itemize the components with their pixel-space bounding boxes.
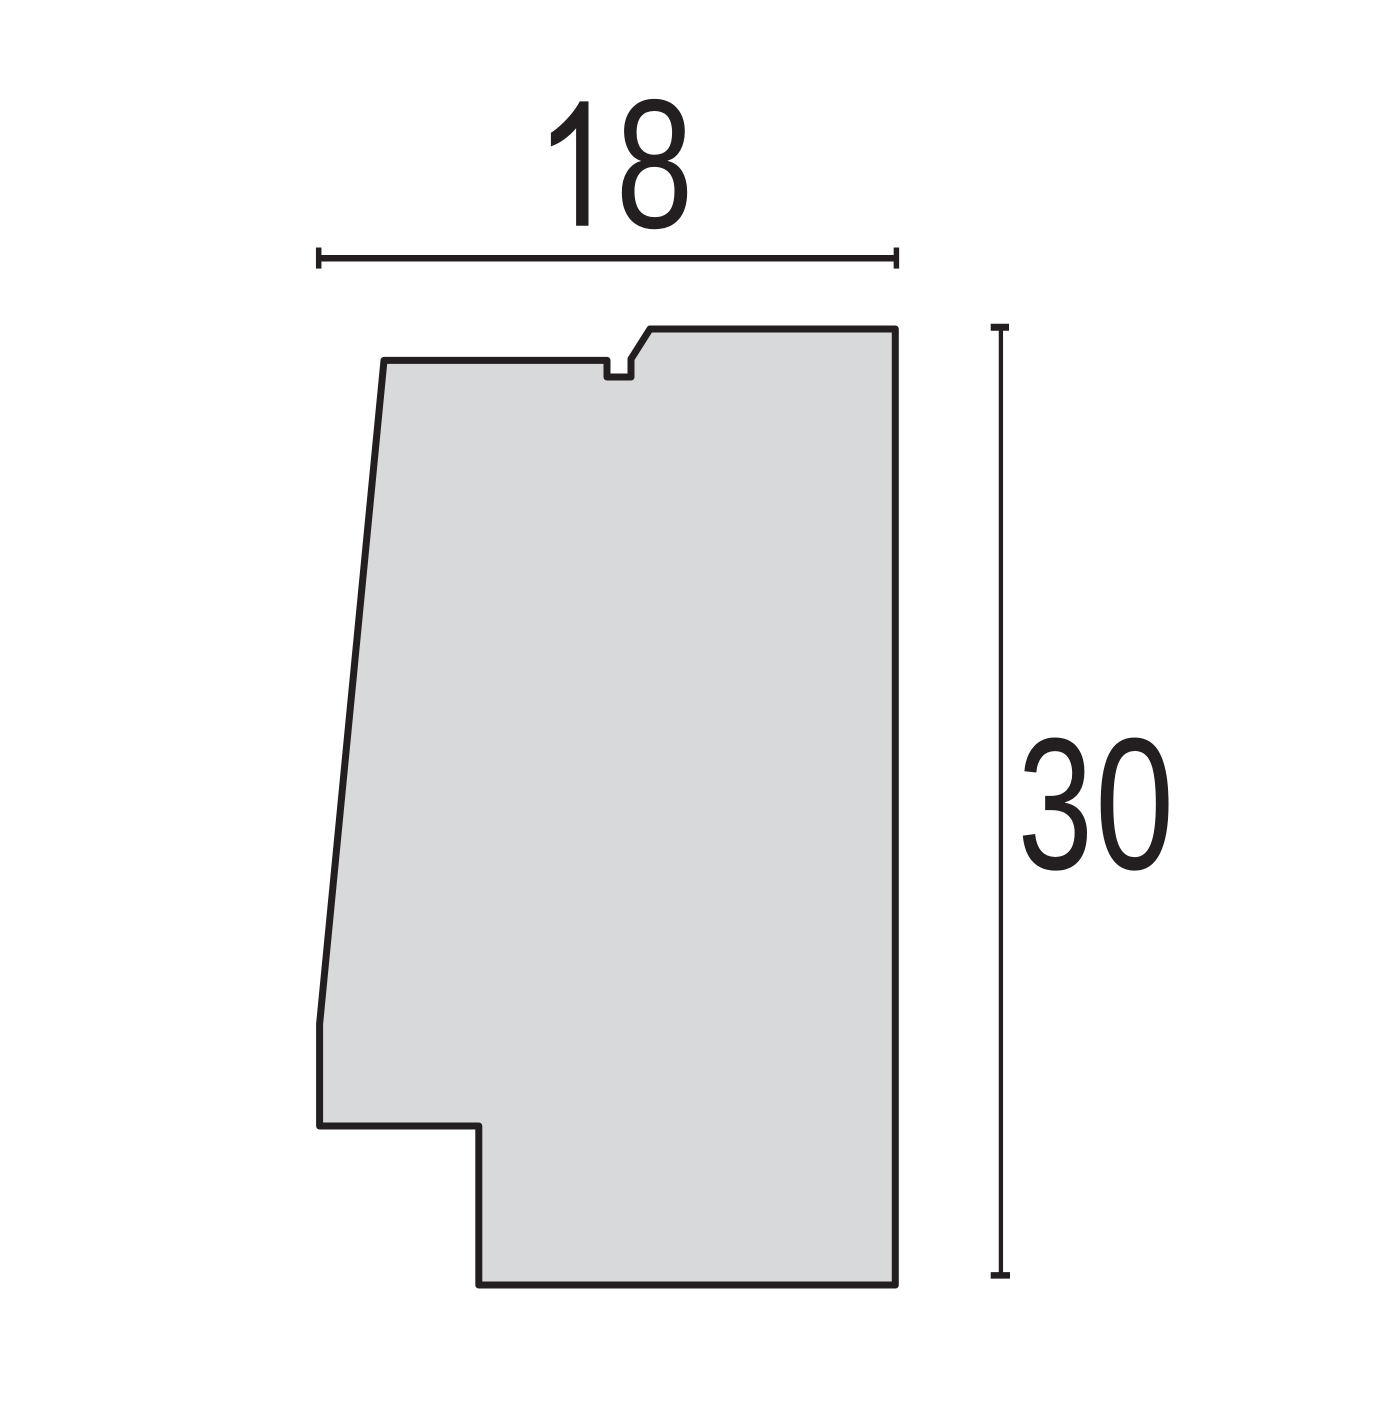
- svg-text:0: 0: [1095, 700, 1174, 910]
- svg-text:8: 8: [616, 61, 693, 267]
- svg-text:3: 3: [1018, 699, 1093, 909]
